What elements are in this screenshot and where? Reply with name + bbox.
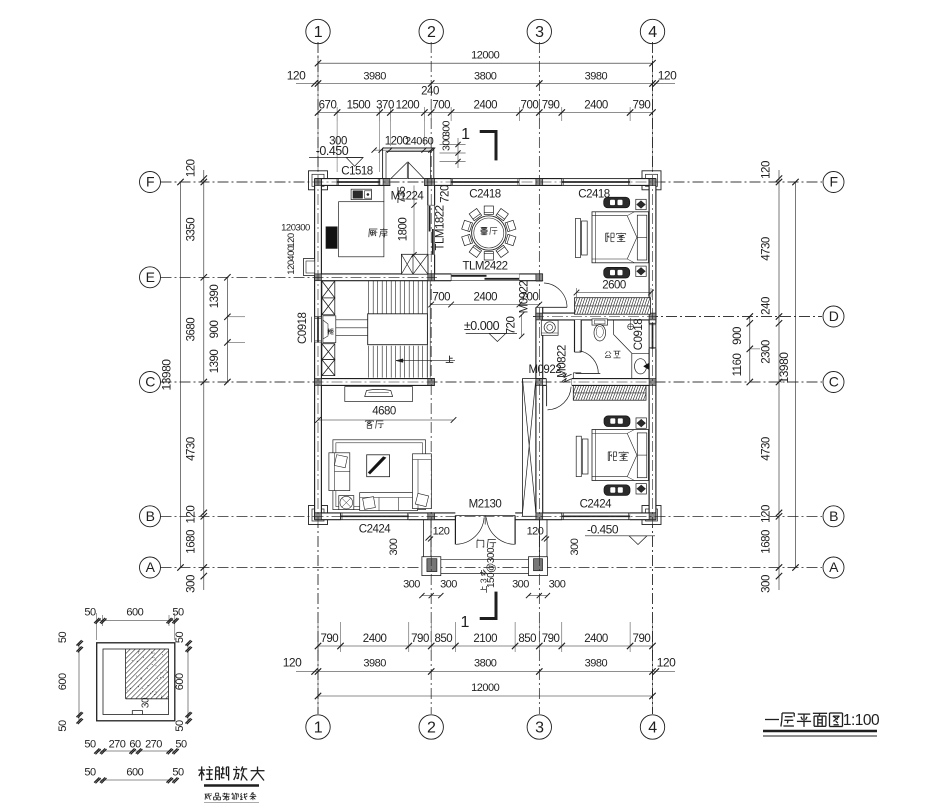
svg-text:F: F <box>146 174 154 190</box>
svg-text:1390: 1390 <box>209 350 221 374</box>
svg-text:4680: 4680 <box>372 406 396 418</box>
svg-text:3680: 3680 <box>186 318 198 342</box>
svg-text:4730: 4730 <box>761 237 773 261</box>
svg-text:30: 30 <box>141 697 152 708</box>
svg-text:3800: 3800 <box>474 658 497 670</box>
svg-text:3: 3 <box>535 24 544 41</box>
svg-text:600: 600 <box>57 673 69 690</box>
svg-text:2400: 2400 <box>584 633 608 645</box>
svg-text:2600: 2600 <box>602 280 626 292</box>
svg-text:120: 120 <box>761 161 773 179</box>
svg-text:600: 600 <box>174 673 186 690</box>
svg-text:300: 300 <box>388 538 400 555</box>
svg-text:600: 600 <box>126 607 143 619</box>
svg-text:50: 50 <box>175 739 187 751</box>
svg-text:300: 300 <box>549 579 566 591</box>
svg-text:120: 120 <box>433 526 450 538</box>
svg-text:±0.000: ±0.000 <box>464 319 500 333</box>
svg-text:1: 1 <box>314 720 323 737</box>
svg-text:C2424: C2424 <box>359 524 391 536</box>
svg-text:B: B <box>146 508 155 524</box>
svg-text:12000: 12000 <box>471 50 499 62</box>
svg-text:TLM2422: TLM2422 <box>462 261 507 273</box>
svg-text:700: 700 <box>432 100 450 112</box>
svg-text:120: 120 <box>287 69 306 83</box>
svg-text:240: 240 <box>761 297 773 315</box>
svg-text:60: 60 <box>129 739 141 751</box>
svg-text:300: 300 <box>403 579 420 591</box>
svg-text:3: 3 <box>479 578 489 583</box>
svg-text:1500: 1500 <box>347 100 371 112</box>
svg-text:240: 240 <box>421 86 439 98</box>
svg-text:790: 790 <box>411 633 429 645</box>
svg-text:TLM1822: TLM1822 <box>434 205 446 250</box>
svg-text:120: 120 <box>186 506 198 524</box>
svg-text:2400: 2400 <box>474 100 498 112</box>
svg-text:50: 50 <box>172 607 184 619</box>
svg-text:50: 50 <box>174 720 186 732</box>
svg-text:600: 600 <box>126 767 143 779</box>
svg-text:900: 900 <box>732 327 744 345</box>
svg-text:120: 120 <box>657 656 676 670</box>
svg-text:700: 700 <box>521 292 539 304</box>
svg-text:120: 120 <box>286 260 297 275</box>
svg-text:E: E <box>146 269 155 285</box>
svg-text:670: 670 <box>319 100 337 112</box>
svg-text:790: 790 <box>633 633 651 645</box>
svg-text:A: A <box>146 559 156 575</box>
svg-text:120: 120 <box>658 69 677 83</box>
svg-text:3980: 3980 <box>363 658 386 670</box>
svg-text:C2424: C2424 <box>580 499 612 511</box>
svg-text:C1518: C1518 <box>341 166 372 178</box>
svg-text:50: 50 <box>84 607 96 619</box>
svg-text:1:100: 1:100 <box>843 712 880 729</box>
svg-text:2: 2 <box>427 720 436 737</box>
svg-text:C: C <box>829 374 839 390</box>
svg-text:300: 300 <box>441 120 453 137</box>
svg-text:120: 120 <box>286 233 297 248</box>
svg-text:M0922: M0922 <box>528 364 561 376</box>
svg-text:400: 400 <box>286 246 297 261</box>
svg-text:370: 370 <box>376 100 394 112</box>
svg-text:270: 270 <box>145 739 162 751</box>
svg-text:790: 790 <box>542 633 560 645</box>
svg-text:F: F <box>829 174 837 190</box>
svg-text:C: C <box>145 374 155 390</box>
svg-text:50: 50 <box>57 720 69 732</box>
svg-text:3: 3 <box>535 720 544 737</box>
svg-text:1680: 1680 <box>186 530 198 554</box>
svg-text:120: 120 <box>761 505 773 523</box>
svg-text:300: 300 <box>441 134 453 151</box>
svg-text:2400: 2400 <box>474 292 498 304</box>
svg-text:300: 300 <box>512 579 529 591</box>
svg-text:50: 50 <box>172 767 184 779</box>
svg-text:720: 720 <box>506 317 518 335</box>
svg-text:13980: 13980 <box>160 359 174 391</box>
svg-text:M1224: M1224 <box>391 191 425 203</box>
svg-text:50: 50 <box>84 767 96 779</box>
svg-text:300: 300 <box>440 579 457 591</box>
svg-text:-0.450: -0.450 <box>316 144 349 158</box>
svg-text:300: 300 <box>186 575 198 593</box>
svg-text:2300: 2300 <box>761 340 773 364</box>
svg-text:C0918: C0918 <box>633 319 645 350</box>
svg-text:850: 850 <box>518 633 536 645</box>
svg-text:850: 850 <box>434 633 452 645</box>
svg-text:120: 120 <box>186 159 198 177</box>
svg-text:700: 700 <box>521 100 539 112</box>
svg-text:-0.450: -0.450 <box>587 523 619 537</box>
svg-text:50: 50 <box>57 632 69 644</box>
svg-text:270: 270 <box>109 739 126 751</box>
svg-text:120: 120 <box>283 656 302 670</box>
svg-text:2: 2 <box>427 24 436 41</box>
svg-text:720: 720 <box>440 185 452 203</box>
svg-text:4: 4 <box>648 24 657 41</box>
svg-text:C2418: C2418 <box>469 189 500 201</box>
svg-text:4730: 4730 <box>186 437 198 461</box>
svg-text:50: 50 <box>84 739 96 751</box>
svg-text:3980: 3980 <box>363 71 386 83</box>
svg-text:790: 790 <box>633 100 651 112</box>
svg-text:2400: 2400 <box>363 633 387 645</box>
svg-text:1800: 1800 <box>398 218 410 242</box>
svg-text:790: 790 <box>320 633 338 645</box>
svg-text:700: 700 <box>432 292 450 304</box>
svg-text:4: 4 <box>648 720 657 737</box>
svg-text:1680: 1680 <box>761 530 773 554</box>
svg-text:2400: 2400 <box>584 100 608 112</box>
svg-text:1160: 1160 <box>732 354 744 377</box>
svg-text:4730: 4730 <box>761 437 773 461</box>
svg-text:12000: 12000 <box>471 682 499 694</box>
svg-text:790: 790 <box>542 100 560 112</box>
svg-text:3800: 3800 <box>474 71 497 83</box>
svg-text:C0918: C0918 <box>297 313 309 344</box>
svg-text:3980: 3980 <box>585 658 608 670</box>
svg-text:120: 120 <box>527 526 544 538</box>
svg-text:B: B <box>829 508 838 524</box>
svg-text:900: 900 <box>209 321 221 339</box>
svg-text:60: 60 <box>422 136 434 148</box>
svg-text:1: 1 <box>461 126 470 143</box>
svg-text:3350: 3350 <box>186 218 198 242</box>
svg-text:300: 300 <box>761 575 773 593</box>
svg-text:240: 240 <box>405 136 422 148</box>
svg-text:50: 50 <box>174 632 186 644</box>
svg-text:3980: 3980 <box>585 71 608 83</box>
svg-text:M2130: M2130 <box>469 499 502 511</box>
svg-text:120300: 120300 <box>281 223 310 234</box>
svg-text:2100: 2100 <box>473 633 497 645</box>
svg-text:300: 300 <box>569 538 581 555</box>
svg-text:1: 1 <box>314 24 323 41</box>
svg-text:1200: 1200 <box>396 100 420 112</box>
svg-text:A: A <box>829 559 839 575</box>
svg-text:1: 1 <box>460 614 469 631</box>
svg-text:D: D <box>829 308 839 324</box>
svg-text:1390: 1390 <box>209 285 221 309</box>
